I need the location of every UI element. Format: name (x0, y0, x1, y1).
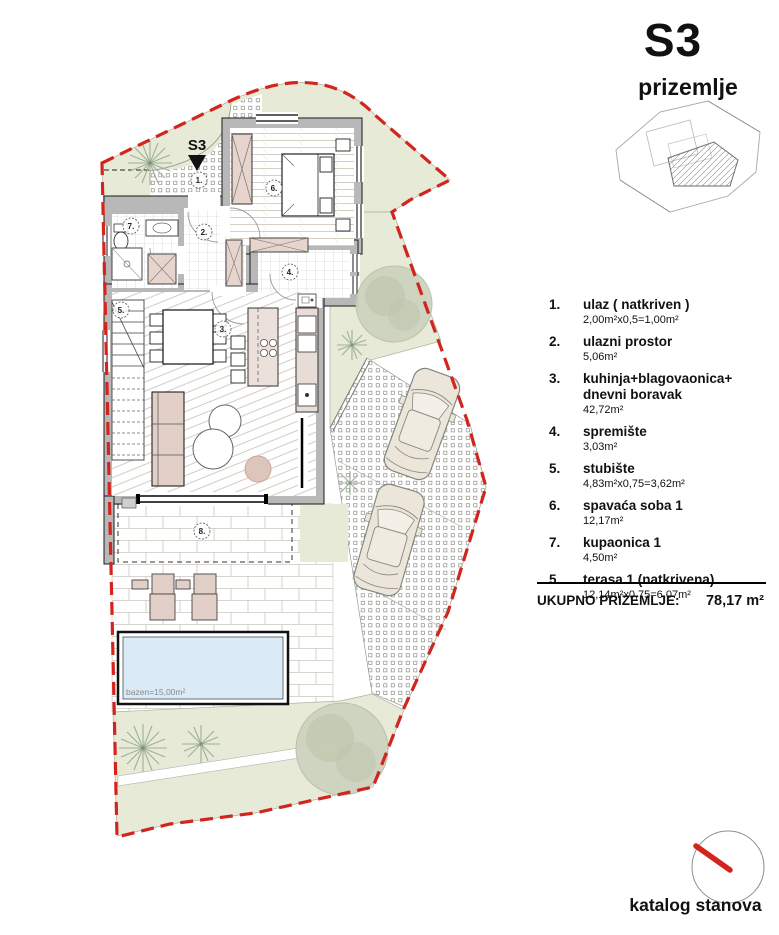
room-number-bath: 7. (128, 222, 135, 231)
legend-item: 4. spremište3,03m² (549, 424, 777, 454)
floor-plan: bazen=15,00m² (0, 0, 540, 935)
legend-item-number: 4. (549, 424, 583, 454)
legend-item-name: ulazni prostor (583, 334, 777, 350)
legend-item-name: ulaz ( natkriven ) (583, 297, 777, 313)
pool: bazen=15,00m² (118, 632, 288, 704)
lawn-patch-right (300, 504, 348, 562)
room-number-stairs: 5. (118, 306, 125, 315)
catalog-label: katalog stanova (612, 895, 779, 916)
legend-item: 6. spavaća soba 112,17m² (549, 498, 777, 528)
legend-item-number: 1. (549, 297, 583, 327)
total-divider (537, 582, 766, 584)
legend-item-area: 42,72m² (583, 404, 777, 417)
room-number-entry: 1. (196, 176, 203, 185)
legend-item-name: terasa 1 (natkrivena) (583, 572, 777, 588)
legend-item-number: 2. (549, 334, 583, 364)
legend-item-number: 5. (549, 461, 583, 491)
bush (356, 266, 432, 342)
site-plan-sketch (610, 92, 770, 237)
legend-item-name: spavaća soba 1 (583, 498, 777, 514)
total-label: UKUPNO PRIZEMLJE: (537, 593, 680, 608)
legend-item: 7. kupaonica 14,50m² (549, 535, 777, 565)
coffee-table (193, 429, 233, 469)
legend-item: 1. ulaz ( natkriven )2,00m²x0,5=1,00m² (549, 297, 777, 327)
unit-marker: S3 (188, 137, 206, 154)
total-value: 78,17 m² (706, 593, 766, 609)
washbasin (146, 220, 178, 236)
legend-item: 2. ulazni prostor5,06m² (549, 334, 777, 364)
legend-item-number: 7. (549, 535, 583, 565)
terrace-step (122, 498, 136, 508)
legend-item-name: spremište (583, 424, 777, 440)
legend-item-number: 6. (549, 498, 583, 528)
legend-item-area: 4,83m²x0,75=3,62m² (583, 478, 777, 491)
legend-item-name: kuhinja+blagovaonica+ dnevni boravak (583, 371, 777, 403)
legend-item: 5. stubište4,83m²x0,75=3,62m² (549, 461, 777, 491)
room-legend: 1. ulaz ( natkriven )2,00m²x0,5=1,00m² 2… (549, 297, 777, 609)
toilet (114, 232, 128, 250)
legend-item-area: 4,50m² (583, 552, 777, 565)
storage-floor (258, 250, 350, 298)
total-row: UKUPNO PRIZEMLJE: 78,17 m² (537, 593, 766, 609)
legend-item-area: 3,03m² (583, 441, 777, 454)
legend-item-name: kupaonica 1 (583, 535, 777, 551)
catalog-page: { "header": { "title": "S3", "subtitle":… (0, 0, 779, 935)
legend-item-number: 3. (549, 371, 583, 417)
legend-item-area: 5,06m² (583, 351, 777, 364)
dining-table (163, 310, 213, 364)
bar-stools (231, 336, 245, 383)
legend-item-area: 12,17m² (583, 515, 777, 528)
sofa (152, 392, 184, 486)
room-number-terrace: 8. (199, 527, 206, 536)
room-number-storage: 4. (287, 268, 294, 277)
pouf (245, 456, 271, 482)
room-number-bedroom: 6. (271, 184, 278, 193)
pool-label: bazen=15,00m² (126, 687, 185, 697)
info-panel: S3 prizemlje (537, 0, 779, 101)
site-unit-highlight (668, 142, 738, 186)
legend-item-area: 2,00m²x0,5=1,00m² (583, 314, 777, 327)
legend-item-name: stubište (583, 461, 777, 477)
kitchen-island (248, 308, 278, 386)
stairs (112, 300, 144, 460)
legend-item: 3. kuhinja+blagovaonica+ dnevni boravak4… (549, 371, 777, 417)
room-number-living: 3. (220, 325, 227, 334)
room-number-hall: 2. (201, 228, 208, 237)
unit-title: S3 (537, 16, 779, 64)
